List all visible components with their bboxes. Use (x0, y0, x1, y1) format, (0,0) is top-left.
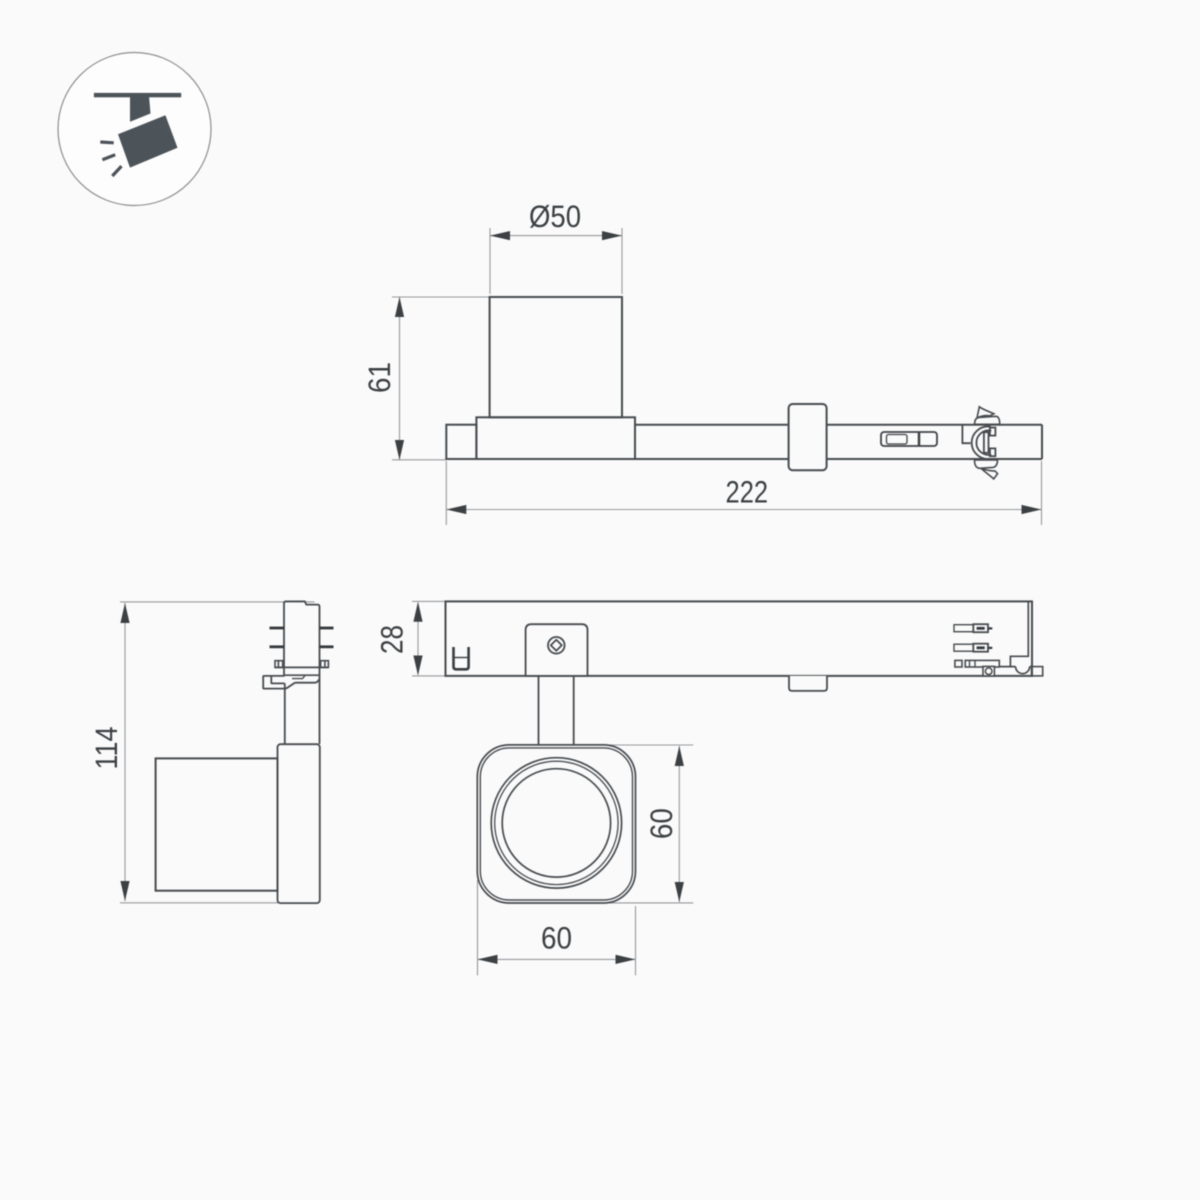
svg-text:222: 222 (726, 475, 769, 510)
svg-text:28: 28 (375, 625, 410, 654)
svg-text:Ø50: Ø50 (529, 199, 581, 234)
svg-text:61: 61 (362, 362, 397, 393)
svg-text:60: 60 (644, 808, 679, 839)
svg-text:114: 114 (89, 727, 124, 770)
svg-text:60: 60 (541, 921, 572, 956)
